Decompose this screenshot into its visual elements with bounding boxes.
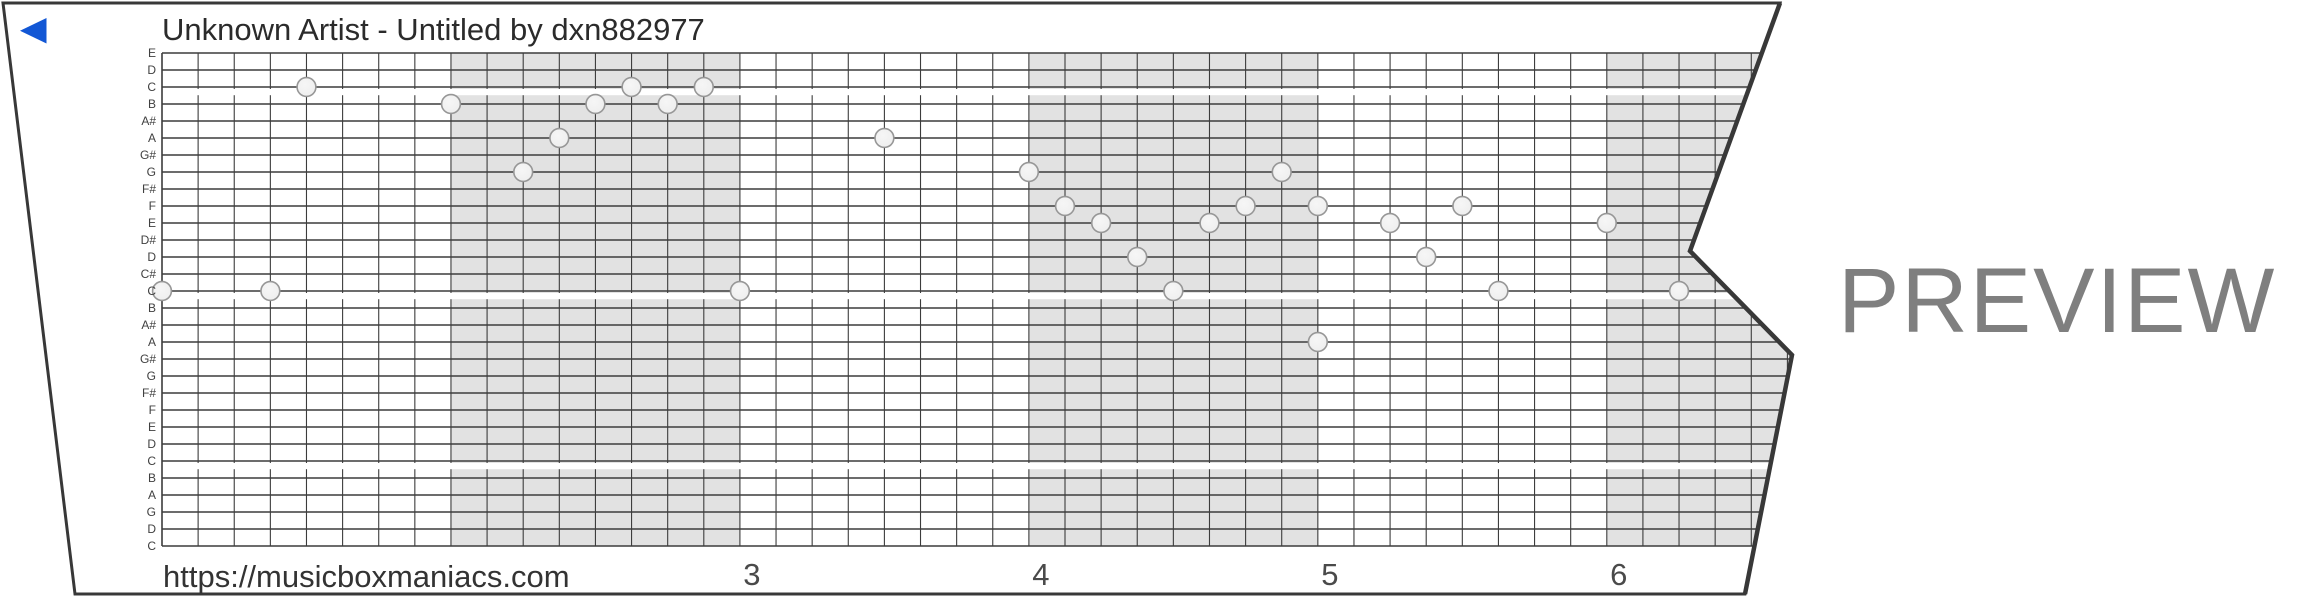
row-label: E xyxy=(148,420,156,434)
row-label: F xyxy=(149,199,156,213)
note-dot-C xyxy=(297,78,316,97)
note-dot-A xyxy=(550,129,569,148)
note-dot-C xyxy=(694,78,713,97)
row-label: G xyxy=(147,369,156,383)
note-dot-G xyxy=(514,163,533,182)
note-dot-B xyxy=(658,95,677,114)
note-dot-G xyxy=(1019,163,1038,182)
row-label: C xyxy=(147,80,156,94)
row-label: B xyxy=(148,301,156,315)
row-label: D xyxy=(147,63,156,77)
octave-break-stripe xyxy=(163,463,1901,469)
site-url: https://musicboxmaniacs.com xyxy=(163,559,570,594)
row-label: D xyxy=(147,437,156,451)
row-label: G# xyxy=(140,352,156,366)
note-dot-F xyxy=(1056,197,1075,216)
note-dot-G xyxy=(1272,163,1291,182)
music-strip-canvas: Unknown Artist - Untitled by dxn882977 E… xyxy=(0,0,2310,597)
note-dot-D xyxy=(1417,248,1436,267)
row-label: A# xyxy=(141,318,156,332)
row-label: A xyxy=(148,335,156,349)
measure-number: 3 xyxy=(743,557,760,592)
note-dot-F xyxy=(1236,197,1255,216)
row-label: B xyxy=(148,97,156,111)
note-dot-A xyxy=(1308,333,1327,352)
note-dot-E xyxy=(1381,214,1400,233)
row-label: C# xyxy=(141,267,157,281)
measure-number: 5 xyxy=(1321,557,1338,592)
row-label: B xyxy=(148,471,156,485)
row-label: A xyxy=(148,131,156,145)
row-label: G xyxy=(147,505,156,519)
row-label: D xyxy=(147,522,156,536)
note-dot-C xyxy=(731,282,750,301)
preview-watermark: PREVIEW xyxy=(1838,250,2276,352)
row-label: C xyxy=(147,539,156,553)
music-strip-preview-page: Unknown Artist - Untitled by dxn882977 E… xyxy=(0,0,2310,597)
octave-break-stripe xyxy=(163,293,1901,299)
note-dot-B xyxy=(442,95,461,114)
note-dot-B xyxy=(586,95,605,114)
note-dot-E xyxy=(1200,214,1219,233)
row-label: D xyxy=(147,250,156,264)
note-dot-F xyxy=(1308,197,1327,216)
note-dot-E xyxy=(1597,214,1616,233)
row-label: E xyxy=(148,46,156,60)
row-label: D# xyxy=(141,233,157,247)
note-dot-E xyxy=(1092,214,1111,233)
row-label: G xyxy=(147,165,156,179)
strip-title: Unknown Artist - Untitled by dxn882977 xyxy=(162,12,705,47)
row-label: G# xyxy=(140,148,156,162)
row-label: C xyxy=(147,284,156,298)
measure-number: 4 xyxy=(1032,557,1049,592)
row-label: A xyxy=(148,488,156,502)
octave-break-stripe xyxy=(163,89,1901,95)
note-dot-F xyxy=(1453,197,1472,216)
row-label: F xyxy=(149,403,156,417)
measure-number: 6 xyxy=(1610,557,1627,592)
note-dot-C xyxy=(1489,282,1508,301)
row-label: F# xyxy=(142,386,156,400)
note-dot-C xyxy=(1670,282,1689,301)
note-dot-C xyxy=(1164,282,1183,301)
note-dot-C xyxy=(622,78,641,97)
row-label: A# xyxy=(141,114,156,128)
row-label: C xyxy=(147,454,156,468)
note-dot-D xyxy=(1128,248,1147,267)
row-label: F# xyxy=(142,182,156,196)
note-dot-C xyxy=(261,282,280,301)
note-dot-A xyxy=(875,129,894,148)
row-label: E xyxy=(148,216,156,230)
